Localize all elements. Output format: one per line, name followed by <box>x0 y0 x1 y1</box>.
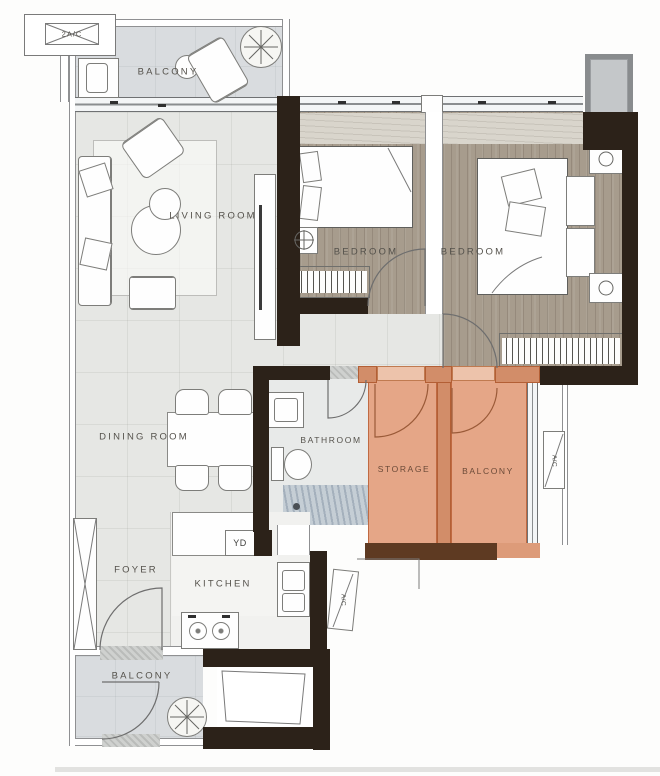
toilet-tank <box>271 447 284 481</box>
plant-pot-top <box>240 26 282 68</box>
bedroom-partition-wall <box>425 112 443 314</box>
tv-console <box>254 174 276 340</box>
kitchen-sink-basin <box>282 593 305 612</box>
room-label-balcony-right: BALCONY <box>462 466 514 476</box>
storage-balcony-top-wall <box>425 366 452 383</box>
bedroom-b-headboard-cushion <box>566 228 595 277</box>
window-tick <box>478 101 486 104</box>
dining-chair <box>175 389 209 415</box>
storage-balcony-divider-wall <box>437 380 451 544</box>
bedroom-a-bottom-wall <box>277 298 368 314</box>
dining-chair <box>175 465 209 491</box>
tv-screen <box>259 205 262 310</box>
right-exterior-wall <box>622 148 638 385</box>
storage-floor <box>368 380 437 544</box>
bedroom-a-wardrobe <box>294 266 370 298</box>
nightstand <box>589 273 623 303</box>
bedroom-b-wardrobe <box>499 333 623 369</box>
window-tick <box>158 104 166 107</box>
kitchen-bottom-wall <box>203 649 330 667</box>
label-ac-right: A/C <box>551 455 558 467</box>
bathroom-sink-basin <box>274 398 298 422</box>
neighbor-room-floor <box>217 667 313 727</box>
ottoman <box>129 276 176 310</box>
bath-kitchen-wall <box>277 525 310 555</box>
bedroom-a-window-sill <box>300 113 426 144</box>
room-label-kitchen: KITCHEN <box>194 579 251 590</box>
bedroom-b-bottomright-wall <box>540 366 638 385</box>
entry-threshold <box>100 646 163 660</box>
room-label-dining-room: DINING ROOM <box>99 432 189 443</box>
toilet-bowl <box>284 449 312 480</box>
ac-ledge-connector <box>60 56 69 102</box>
kitchen-sink-basin <box>282 570 305 591</box>
stove-knob <box>188 615 196 618</box>
balcony-right-door-lintel <box>452 366 495 381</box>
shower-drain <box>293 503 300 510</box>
balcony-right-window <box>527 383 538 543</box>
bedroom-a-pillow <box>299 151 322 183</box>
label-yd-appliance: YD <box>233 538 247 548</box>
label-ac-kitchen: A/C <box>340 594 347 606</box>
adjacent-plan-edge <box>55 767 660 772</box>
balcony-right-floor <box>451 380 527 544</box>
window-tick <box>338 101 346 104</box>
window-mullion-box <box>421 95 443 113</box>
balcony-right-bottom-sill <box>497 543 540 558</box>
room-label-bedroom-b: BEDROOM <box>441 247 506 258</box>
stove-burner <box>189 622 207 640</box>
room-label-foyer: FOYER <box>114 565 158 576</box>
storage-door-lintel <box>377 366 425 381</box>
bedroom-b-window <box>443 96 583 112</box>
neighbor-right-wall <box>313 665 330 750</box>
bedroom-a-window <box>300 96 425 112</box>
room-label-balcony-top: BALCONY <box>138 67 199 78</box>
ac-pipe-line <box>357 559 419 589</box>
balcony-top-right-railing <box>282 19 290 102</box>
window-tick <box>110 101 118 104</box>
storage-top-wall <box>358 366 377 383</box>
stove-knob <box>222 615 230 618</box>
room-label-bedroom-a: BEDROOM <box>334 247 399 258</box>
stove-burner <box>212 622 230 640</box>
room-label-balcony-bottom: BALCONY <box>112 671 173 682</box>
bathroom-left-wall <box>253 366 269 532</box>
floor-plan: 2A/C BALCONY LIVING ROOM BEDROOM BEDROOM… <box>0 0 660 776</box>
room-label-bathroom: BATHROOM <box>300 435 361 445</box>
living-room-window <box>75 97 283 112</box>
room-label-living-room: LIVING ROOM <box>169 211 257 222</box>
dining-chair <box>218 389 252 415</box>
room-label-ac-ledge: 2A/C <box>62 30 83 39</box>
hallway-floor <box>283 312 443 368</box>
window-tick <box>548 101 556 104</box>
plant-pot-bottom <box>167 697 207 737</box>
bedroom-b-headboard-cushion <box>566 176 595 226</box>
neighbor-bottom-wall <box>203 727 313 749</box>
shoe-cabinet <box>73 518 97 650</box>
storage-bottom-wall <box>365 543 497 560</box>
balcony-right-top-wall <box>495 366 540 383</box>
room-label-storage: STORAGE <box>378 464 431 474</box>
washer-door <box>86 63 108 93</box>
sofa-cushion <box>79 237 112 270</box>
bedroom-b-pillow <box>505 201 546 236</box>
kitchen-right-wall <box>310 551 327 655</box>
balcony-bottom-threshold <box>102 734 160 747</box>
window-tick <box>392 101 400 104</box>
bedroom-b-topright-wall <box>583 112 638 150</box>
dining-chair <box>218 465 252 491</box>
bedroom-b-window-sill <box>443 113 583 144</box>
dark-appliance-nook <box>254 530 272 556</box>
